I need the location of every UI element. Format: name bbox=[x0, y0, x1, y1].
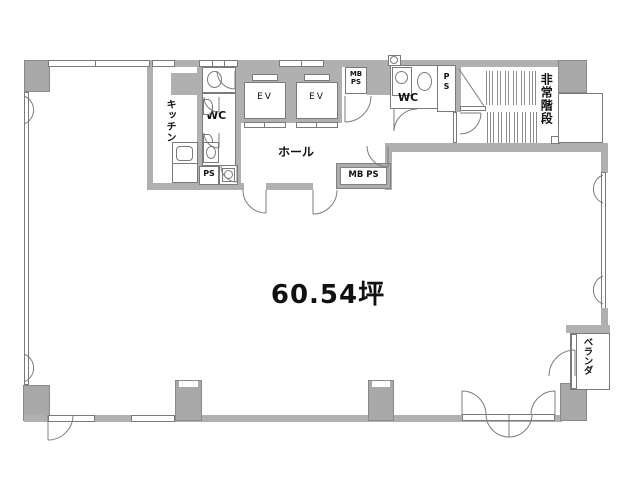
floor-plan: EV EV WC PS キッチン ホール MB PS MB PS WC P S bbox=[0, 0, 640, 480]
door-arcs-layer bbox=[0, 0, 640, 480]
